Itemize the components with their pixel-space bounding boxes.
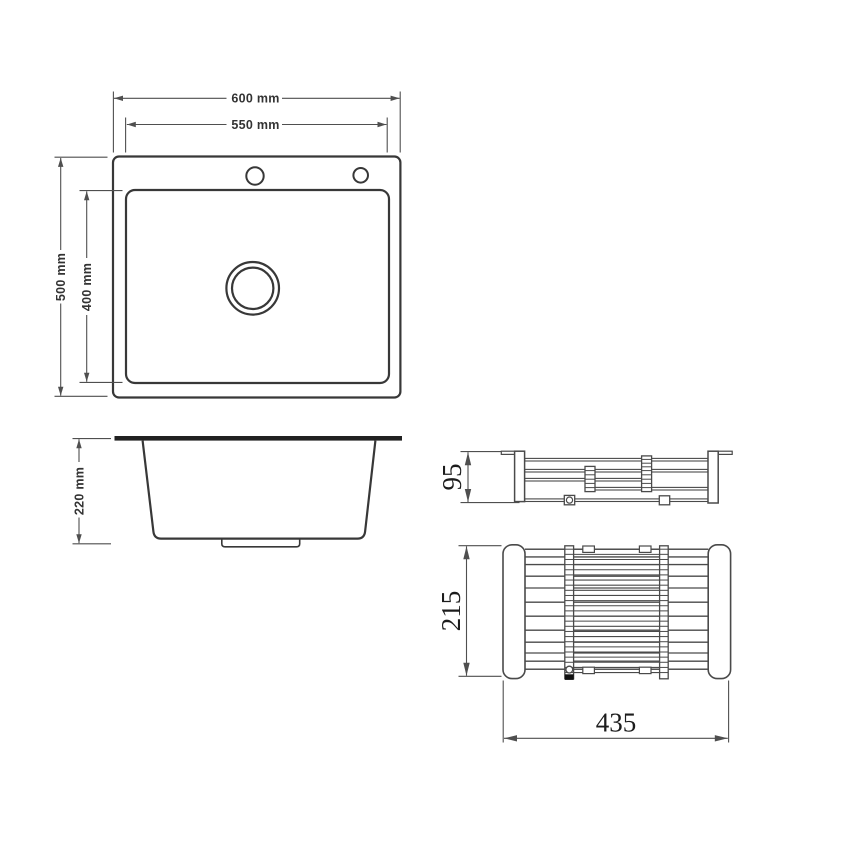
dim-label-550mm: 550 mm	[231, 118, 279, 132]
dim-sink-width-inner: 550 mm	[126, 118, 388, 153]
arrowhead	[58, 387, 63, 396]
arrowhead	[127, 122, 136, 127]
dim-rack-depth: 215	[436, 546, 502, 677]
rack-rod	[525, 458, 708, 461]
rack-end-cap-right	[708, 545, 730, 679]
dim-label-220mm: 220 mm	[73, 467, 87, 515]
drain-lip	[222, 539, 300, 547]
rack-full-rods	[525, 549, 708, 669]
dim-label-600mm: 600 mm	[231, 92, 279, 106]
rack-top-view	[503, 545, 731, 680]
faucet-hole-left	[246, 167, 263, 184]
dim-rack-height: 95	[437, 452, 520, 503]
counter-rim-bar	[115, 436, 403, 441]
rack-lock-pin	[566, 666, 573, 673]
rack-clip	[639, 667, 651, 673]
drain-inner-ring	[232, 268, 273, 309]
dim-label-435: 435	[596, 708, 637, 738]
arrowhead	[504, 735, 517, 741]
rack-end-bracket-left	[515, 451, 525, 501]
dim-sink-depth: 220 mm	[73, 439, 112, 544]
rack-slider-block	[659, 496, 669, 505]
arrowhead	[76, 534, 81, 543]
faucet-hole-right	[353, 168, 368, 183]
dim-label-400mm: 400 mm	[80, 263, 94, 311]
rack-clip	[583, 546, 595, 552]
arrowhead	[465, 452, 471, 465]
arrowhead	[378, 122, 387, 127]
basin-body	[143, 441, 376, 539]
arrowhead	[715, 735, 728, 741]
rack-hook-left	[501, 451, 515, 454]
rack-hinge-strip-tall	[642, 456, 652, 492]
dim-label-215: 215	[436, 591, 466, 632]
sink-technical-drawing: 600 mm 550 mm 500 mm 400 mm	[0, 0, 850, 850]
rack-hook-right	[718, 451, 732, 454]
arrowhead	[84, 373, 89, 382]
dim-label-95: 95	[437, 464, 467, 491]
rack-end-cap-left	[503, 545, 525, 679]
rack-rod	[525, 499, 708, 502]
rack-hinge-strip-right	[660, 546, 669, 679]
arrowhead	[76, 439, 81, 448]
rack-middle-rods	[567, 549, 667, 672]
sink-top-view	[113, 157, 400, 398]
rack-rod	[525, 469, 708, 472]
sink-inner-basin	[126, 190, 389, 383]
rack-clip	[583, 667, 595, 673]
rack-side-view	[501, 451, 732, 505]
arrowhead	[463, 663, 469, 676]
arrowhead	[391, 96, 400, 101]
arrowhead	[463, 546, 469, 559]
rack-lock-block	[565, 674, 574, 680]
sink-outer-rim	[113, 157, 400, 398]
arrowhead	[58, 158, 63, 167]
rack-clip	[639, 546, 651, 552]
dim-rack-width: 435	[503, 681, 728, 743]
drawing-page: 600 mm 550 mm 500 mm 400 mm	[0, 0, 850, 850]
sink-side-view	[115, 436, 403, 547]
arrowhead	[114, 96, 123, 101]
drain-outer-ring	[226, 262, 279, 315]
arrowhead	[84, 191, 89, 200]
rack-hinge-strip-left	[565, 546, 574, 679]
dim-sink-height-inner: 400 mm	[80, 191, 123, 383]
dim-label-500mm: 500 mm	[54, 253, 68, 301]
rack-end-bracket-right	[708, 451, 718, 503]
